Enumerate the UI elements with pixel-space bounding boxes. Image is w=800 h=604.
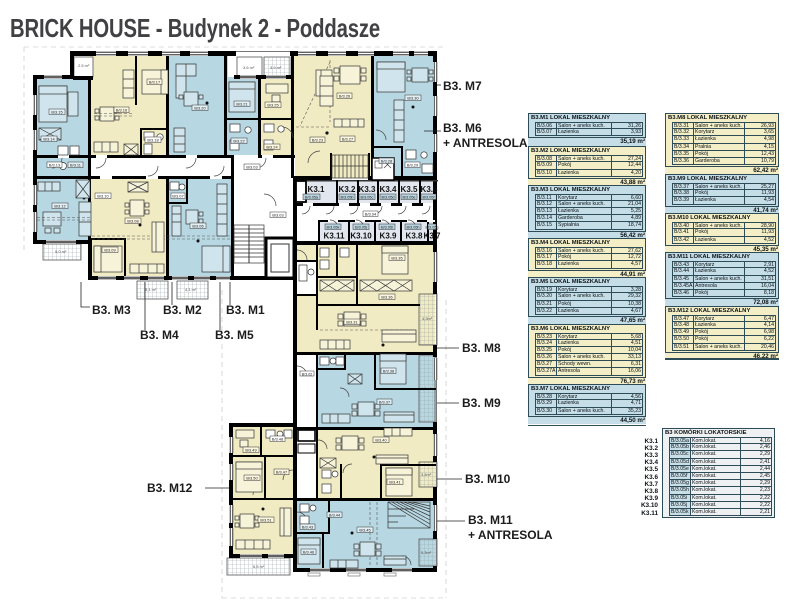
svg-text:B/3.30: B/3.30 [407, 96, 419, 101]
svg-text:B/3.11: B/3.11 [70, 163, 81, 168]
svg-text:B/3.05g: B/3.05g [425, 225, 438, 229]
svg-text:B3. M12: B3. M12 [147, 481, 193, 495]
svg-text:B/3.17: B/3.17 [149, 80, 160, 85]
svg-text:K3.2: K3.2 [339, 185, 356, 194]
svg-text:B/3.05f: B/3.05f [422, 195, 435, 199]
svg-text:B3. M3: B3. M3 [92, 303, 131, 317]
svg-text:B3. M5: B3. M5 [215, 328, 254, 342]
svg-text:B3. M9: B3. M9 [462, 396, 501, 410]
svg-text:B/3.47: B/3.47 [276, 470, 287, 475]
svg-text:B/3.05h: B/3.05h [406, 225, 419, 229]
svg-text:K3.8: K3.8 [406, 232, 423, 241]
svg-text:K3.7: K3.7 [424, 232, 441, 241]
svg-text:B/3.05k: B/3.05k [327, 225, 340, 229]
svg-text:B/3.14: B/3.14 [43, 137, 55, 142]
svg-text:B/3.05j: B/3.05j [355, 225, 367, 229]
svg-text:B/3.41: B/3.41 [389, 480, 400, 485]
svg-text:B/3.08: B/3.08 [127, 219, 138, 224]
svg-text:B3. M6: B3. M6 [443, 121, 482, 135]
svg-text:4,1 m²: 4,1 m² [185, 287, 197, 292]
svg-text:K3.1: K3.1 [308, 185, 325, 194]
svg-text:B/3.05b: B/3.05b [340, 195, 353, 199]
svg-text:B/3.05e: B/3.05e [402, 195, 415, 199]
svg-text:B/3.36: B/3.36 [381, 295, 392, 300]
svg-text:2.5 m²: 2.5 m² [78, 63, 90, 68]
svg-text:B/3.38: B/3.38 [383, 369, 394, 374]
svg-text:B/3.40: B/3.40 [375, 438, 387, 443]
svg-text:B/3.04: B/3.04 [365, 212, 377, 217]
svg-text:B/3.46: B/3.46 [303, 550, 314, 555]
svg-text:B/3.29: B/3.29 [407, 163, 418, 168]
svg-text:B/3.22: B/3.22 [233, 139, 244, 144]
svg-text:K3.5: K3.5 [401, 185, 418, 194]
svg-text:B/3.23: B/3.23 [312, 138, 323, 143]
svg-text:8,1 m²: 8,1 m² [145, 287, 157, 292]
svg-text:B/3.06: B/3.06 [192, 224, 203, 229]
svg-text:B/3.28: B/3.28 [381, 159, 392, 164]
svg-text:B/3.12: B/3.12 [54, 204, 65, 209]
svg-text:B3. M10: B3. M10 [465, 472, 511, 486]
svg-text:B/3.02: B/3.02 [302, 373, 312, 377]
svg-text:B/3.05a: B/3.05a [305, 195, 319, 199]
svg-text:B/3.45: B/3.45 [359, 528, 370, 533]
svg-text:B/3.37: B/3.37 [379, 400, 390, 405]
svg-text:B/3.03: B/3.03 [272, 213, 283, 218]
svg-text:B/3.16: B/3.16 [116, 108, 127, 113]
svg-text:B/3.21: B/3.21 [236, 102, 247, 107]
svg-text:B3. M4: B3. M4 [140, 328, 179, 342]
svg-text:B/3.18: B/3.18 [147, 138, 158, 143]
svg-text:B/3.50: B/3.50 [246, 476, 258, 481]
svg-text:B/3.09: B/3.09 [104, 248, 115, 253]
svg-text:B/3.05i: B/3.05i [381, 225, 393, 229]
svg-text:5,3m²: 5,3m² [421, 550, 432, 555]
svg-text:B/3.27: B/3.27 [342, 137, 353, 142]
svg-text:B3. M8: B3. M8 [462, 341, 501, 355]
svg-text:B/3.51: B/3.51 [260, 518, 271, 523]
svg-text:+ ANTRESOLA: + ANTRESOLA [468, 528, 553, 542]
svg-text:3,4m²: 3,4m² [421, 472, 432, 477]
svg-text:B/3.49: B/3.49 [245, 448, 256, 453]
svg-text:B3. M7: B3. M7 [443, 79, 482, 93]
svg-text:B/3.48: B/3.48 [272, 437, 283, 442]
svg-text:3.9 m²: 3.9 m² [270, 65, 282, 70]
svg-text:B/3.43: B/3.43 [302, 525, 313, 530]
svg-text:B/3.25: B/3.25 [267, 103, 278, 108]
svg-text:B/3.20: B/3.20 [194, 106, 206, 111]
svg-text:B/3.05d: B/3.05d [381, 195, 394, 199]
svg-text:4,3m²: 4,3m² [422, 316, 433, 321]
svg-text:K3.10: K3.10 [350, 232, 372, 241]
svg-text:B/3.13: B/3.13 [49, 163, 60, 168]
svg-text:B/3.31: B/3.31 [346, 320, 357, 325]
svg-text:B3. M1: B3. M1 [226, 303, 265, 317]
svg-text:K3.3: K3.3 [359, 185, 376, 194]
svg-text:B3. M2: B3. M2 [163, 303, 202, 317]
svg-text:6,5 m²: 6,5 m² [253, 564, 265, 569]
svg-text:B/3.44: B/3.44 [329, 513, 341, 518]
svg-text:5,0 m²: 5,0 m² [55, 249, 67, 254]
svg-text:B/3.35: B/3.35 [391, 256, 402, 261]
svg-text:B/3.07: B/3.07 [172, 194, 183, 199]
svg-text:K3.6: K3.6 [421, 185, 438, 194]
svg-text:B3. M11: B3. M11 [468, 513, 513, 527]
svg-text:+ ANTRESOLA: + ANTRESOLA [443, 136, 528, 150]
svg-text:B/3.15: B/3.15 [51, 110, 62, 115]
svg-text:B/3.05c: B/3.05c [361, 195, 374, 199]
svg-text:B/3.26: B/3.26 [339, 94, 350, 99]
svg-text:3.6 m²: 3.6 m² [243, 65, 255, 70]
svg-text:B/3.10: B/3.10 [97, 194, 109, 199]
svg-text:K3.4: K3.4 [380, 185, 397, 194]
svg-text:B/3.03: B/3.03 [246, 165, 257, 170]
svg-text:K3.11: K3.11 [324, 232, 345, 241]
svg-text:B/3.24: B/3.24 [266, 145, 278, 150]
svg-text:K3.9: K3.9 [380, 232, 397, 241]
